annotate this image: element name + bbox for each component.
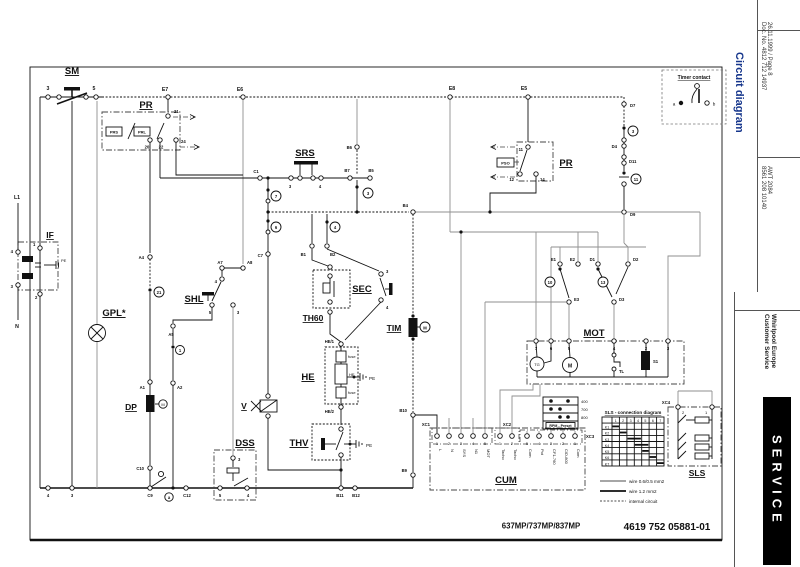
diagram-frame [30,67,722,540]
mot-pin-3: 3 [667,346,670,351]
contact-10: 10 [548,280,553,285]
label-xc4: XC4 [662,400,671,405]
cum-n3: 3 [460,441,463,446]
terminal-dss5: 5 [219,493,222,498]
terminal-shl3: 3 [237,310,240,315]
dp-pump-symbol [146,384,188,501]
terminal-b4: B4 [403,203,409,208]
terminal-bot4: 4 [47,493,50,498]
terminal-pr14: 14 [540,177,545,182]
sls-col-7: 7 [659,419,661,423]
node-bot4 [46,486,50,490]
cum-n2: 2 [448,441,451,446]
timer-contact-a: a [673,102,676,107]
sidebar-model-line1: AWT 2084 [766,166,772,256]
label-tl: TL [619,369,625,374]
cum-n9: 4 [538,441,541,446]
rpm-label: RPM - Preset [549,424,572,428]
terminal-if4: 4 [11,249,14,254]
terminal-a8: A8 [247,260,253,265]
label-gpl: GPL* [102,308,126,319]
sls-selector-box [668,391,721,466]
terminal-b11: B11 [336,493,344,498]
label-tg: TG [534,362,540,367]
rpm-value-2: 700 [581,407,588,412]
legend-wire-thick: wire 1.2 mm2 [629,489,657,494]
service-banner-text: SERVICE [770,435,785,527]
srs-switch-symbol [160,145,373,214]
sls-pin-2: 2 [682,410,685,415]
sidebar-doc-block: 26.11.1999 / Page 8 Doc. No. 4812 712 14… [760,22,772,132]
label-pso: PSO [501,161,509,166]
service-manual-page: SM 3 5 E7 E6 E8 E5 PR PRS PRL 21 20 22 2… [0,0,800,567]
sidebar-rule-bottom [734,292,735,567]
terminal-sec3: 3 [386,269,389,274]
rpm-value-3: 800 [581,415,588,420]
terminal-5: 5 [93,86,96,92]
timer-contact-title: Timer contact [678,75,711,81]
terminal-e2: E2 [570,257,576,262]
label-cum: CUM [495,475,517,486]
label-xc1: XC1 [422,422,431,427]
terminal-24: 24 [181,139,186,144]
terminal-c12: C12 [183,493,191,498]
sidebar-sep-3 [734,310,800,311]
terminal-shl5: 5 [209,310,212,315]
cum-pin-cd: C/D-800 [564,449,569,465]
pr-left-relay [102,99,243,253]
terminal-b6: B6 [347,145,353,150]
node-e5 [526,95,530,99]
node-e6 [241,95,245,99]
cum-n4: 4 [472,441,475,446]
mot-pin-2: 2 [645,346,648,351]
label-fuse-top: fuse [348,354,356,359]
sls-row-k5: K5 [605,450,609,454]
legend-wire-thin: wire 0.6/0.5 mm2 [629,479,665,484]
terminal-3: 3 [47,86,50,92]
gpl-lamp-symbol [89,325,106,342]
terminal-b10: B10 [399,408,407,413]
cum-pin-tacho1: Tacho [501,449,506,460]
sls-row-k3: K3 [605,438,609,442]
service-banner: SERVICE [763,397,791,565]
terminal-pr11: 11 [519,147,524,152]
he-heater-symbol [325,342,366,409]
mot-pin-6: 6 [550,346,553,351]
terminal-a4: A4 [139,255,145,260]
terminal-he2: HE/2 [325,409,335,414]
cum-pin-cf1: CF1-760 [552,449,557,465]
mot-pin-4: 4 [613,346,616,351]
terminal-b2: B2 [330,252,336,257]
terminal-d4: D4 [612,144,618,149]
terminal-d2: D2 [633,257,639,262]
cum-pin-sys: SYS [462,449,467,457]
sls-table-grid [602,417,664,466]
sls-table-title: SLS - connection diagram [605,410,662,415]
terminal-if3: 3 [11,284,14,289]
d-column-contacts [619,97,641,247]
terminal-20: 20 [145,145,150,150]
cum-pin-com2: Com [576,449,581,458]
footer-part-number: 4619 752 05881-01 [624,522,711,533]
terminal-l1: L1 [14,195,20,201]
terminal-c1: C1 [253,169,259,174]
terminal-dss4: 4 [247,493,250,498]
label-fuse-bot: fuse [348,390,356,395]
sidebar-sep-2 [757,157,800,158]
rpm-value-1: 400 [581,399,588,404]
label-prl: PRL [138,130,147,135]
label-s1: S1 [653,359,659,364]
terminal-pr12: 12 [509,177,514,182]
label-if: IF [46,230,54,240]
label-pe-if: PE [61,258,67,263]
label-shl: SHL [185,294,204,305]
label-m-tim: M [423,326,427,331]
label-th60: TH60 [303,313,324,323]
terminal-shl4: 4 [215,279,218,284]
terminal-a1: A1 [140,385,146,390]
terminal-b7: B7 [344,168,350,173]
label-v: V [241,401,247,411]
terminal-a5: A5 [168,332,174,337]
label-pr-right: PR [559,158,572,169]
terminal-e6: E6 [237,87,243,93]
sls-col-5: 5 [644,419,646,423]
sls-row-k1: K1 [605,426,609,430]
terminal-srs4: 4 [319,184,322,189]
cum-n5: 5 [484,441,487,446]
sidebar-doc-line1: 26.11.1999 / Page 8 [766,22,772,132]
contact-21: 21 [157,290,162,295]
sidebar-title: Circuit diagram [733,52,745,182]
terminal-n: N [15,324,19,330]
cum-pin-tacho2: Tacho [513,449,518,460]
node-e8 [448,95,452,99]
terminal-he1: HE/1 [325,339,335,344]
sls-row-k7: K7 [605,462,609,466]
wire-legend [600,481,626,501]
sidebar-brand-line2: Customer Service [763,314,770,394]
label-dss: DSS [235,438,255,449]
label-sm: SM [65,66,79,77]
sls-col-2: 2 [622,419,624,423]
sls-row-k6: K6 [605,456,609,460]
node-e7 [166,95,170,99]
cum-pin-n: N [450,449,455,452]
sls-col-1: 1 [615,419,617,423]
contact-13: 13 [601,280,606,285]
sls-row-k4: K4 [605,444,609,448]
circuit-diagram-canvas: SM 3 5 E7 E6 E8 E5 PR PRS PRL 21 20 22 2… [0,0,800,567]
label-pe-thv: PE [366,443,372,448]
pr-right-relay [488,99,553,214]
label-sls: SLS [689,468,706,478]
sls-row-k2: K2 [605,432,609,436]
timer-contact-column [266,176,281,394]
label-thv: THV [290,438,310,449]
label-m-dp: M [161,402,164,407]
label-mot: MOT [583,328,604,339]
terminal-c10: C10 [136,466,144,471]
sls-col-4: 4 [637,419,639,423]
cum-pin-n1: N1 [474,449,479,455]
cum-pin-pot: Pot [540,449,545,456]
terminal-b12: B12 [352,493,360,498]
cum-n7: 2 [511,441,514,446]
contact-11: 11 [634,177,639,182]
footer-models: 637MP/737MP/837MP [502,522,580,531]
cum-pin-l: L [438,449,443,452]
label-pe-he: PE [369,376,375,381]
terminal-srs3: 3 [289,184,292,189]
terminal-sec4: 4 [386,305,389,310]
label-he: HE [301,372,314,383]
terminal-b5: B5 [368,168,374,173]
cum-n11: 2 [562,441,565,446]
terminal-e3: E3 [574,297,580,302]
cum-n8: 5 [526,441,529,446]
terminal-if2: 2 [35,295,38,300]
node-bot3 [70,486,74,490]
cum-n10: 3 [550,441,553,446]
mot-pin-5: 5 [568,346,571,351]
sidebar-brand-line1: Whirlpool Europe [770,314,777,394]
legend-wire-internal: internal circuit [629,499,658,504]
cum-n12: 1 [574,441,577,446]
sls-col-6: 6 [652,419,654,423]
terminal-d9: D9 [630,212,636,217]
sls-col-3: 3 [630,419,632,423]
terminal-c9: C9 [147,493,153,498]
terminal-d3: D3 [619,297,625,302]
label-srs: SRS [295,148,315,159]
terminal-e5: E5 [521,86,527,92]
terminal-e8: E8 [449,86,455,92]
label-xc3: XC3 [586,434,595,439]
terminal-d7: D7 [630,103,636,108]
node-b4 [411,210,415,214]
terminal-d1: D1 [590,257,596,262]
terminal-b1: B1 [301,252,307,257]
terminal-a7: A7 [217,260,223,265]
label-dp: DP [125,402,137,412]
terminal-e7: E7 [162,87,168,93]
terminal-22: 22 [159,145,164,150]
terminal-b9: B9 [402,468,408,473]
cum-pin-com1: Com [528,449,533,458]
terminal-c7: C7 [258,253,264,258]
tim-symbol [409,214,438,488]
sls-pin-1: 1 [705,410,708,415]
sidebar-model-line2: 8561 208 10140 [760,166,766,256]
terminal-dss3: 3 [238,457,241,462]
terminal-a2: A2 [177,385,183,390]
terminal-bot3: 3 [71,493,74,498]
label-pr-left: PR [139,100,152,111]
terminal-e1: E1 [551,257,557,262]
label-prs: PRS [110,130,119,135]
sidebar-brand-block: Whirlpool Europe Customer Service [763,314,777,394]
timer-contact-b: b [713,102,716,107]
cum-pin-mot: MOT [486,449,491,458]
cum-n6: 1 [499,441,502,446]
terminal-21: 21 [174,109,179,114]
cum-n1: 1 [436,441,439,446]
terminal-d11: D11 [629,159,637,164]
label-m-mot: M [568,364,572,370]
label-tim: TIM [387,323,402,333]
if-filter-symbol [16,203,59,320]
motor-feed-contacts [545,262,630,304]
shl-switch-symbol [148,255,245,490]
label-he-mid: HE [349,372,355,377]
label-sec: SEC [352,284,372,295]
sidebar-doc-line2: Doc. No. 4812 712 14937 [760,22,766,132]
mot-pin-7: 7 [535,346,538,351]
thv-symbol [312,409,362,490]
terminal-if1: 1 [33,242,36,247]
sidebar-model-block: AWT 2084 8561 208 10140 [760,166,772,256]
label-xc2: XC2 [503,422,512,427]
sidebar-rule-top [757,0,758,292]
